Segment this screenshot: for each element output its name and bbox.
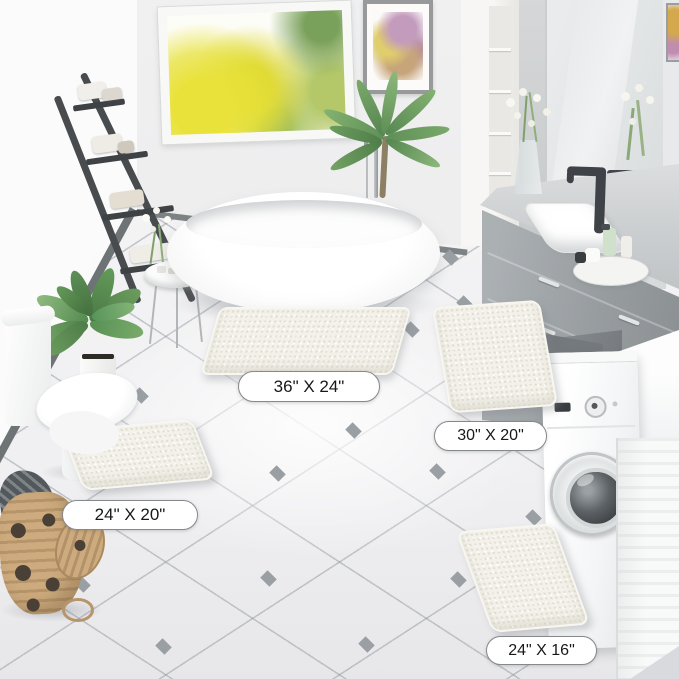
soap-pump — [601, 224, 610, 230]
jar — [157, 266, 166, 273]
basket-dot — [26, 598, 40, 612]
niche-shelf — [489, 90, 511, 93]
bathroom-product-photo: 36" X 24" 30" X 20" 24" X 20" 24" X 16" — [0, 0, 679, 679]
niche-shelf — [489, 132, 511, 135]
basket-handle — [62, 598, 94, 622]
bottle — [621, 236, 632, 258]
mirror-flower — [629, 118, 636, 125]
rolled-towel — [109, 189, 145, 210]
basket-dot — [73, 538, 87, 552]
niche-shelf — [489, 48, 511, 51]
bath-mat-36x24 — [200, 307, 411, 375]
washer-top — [541, 351, 637, 365]
flower — [519, 88, 527, 96]
flower — [164, 216, 171, 223]
basket-dot — [42, 513, 56, 527]
flower — [506, 98, 515, 107]
flower — [533, 94, 541, 102]
mirror-flower — [635, 84, 643, 92]
bathtub-rim — [186, 200, 422, 248]
basket-dot — [10, 523, 26, 539]
rolled-towel — [117, 140, 135, 154]
basket-dot — [45, 577, 60, 592]
washer-display — [554, 403, 570, 412]
mirror-flower — [646, 96, 654, 104]
size-label-24x20: 24" X 20" — [62, 500, 198, 530]
flower — [150, 226, 156, 232]
bath-mat-30x20 — [432, 300, 558, 413]
bath-mat-contour-24x20 — [61, 419, 216, 491]
jar — [585, 248, 600, 262]
mirror-flower-stem — [626, 108, 634, 160]
storage-cabinet — [616, 438, 679, 679]
flower — [528, 120, 535, 127]
flower — [153, 207, 160, 214]
flower — [543, 108, 551, 116]
basket-dot — [15, 565, 32, 582]
plant-soil — [82, 354, 114, 359]
niche-shelf — [489, 172, 511, 175]
mirror-flower-stem — [636, 100, 645, 156]
size-label-36x24: 36" X 24" — [238, 371, 380, 402]
size-label-24x16: 24" X 16" — [486, 636, 597, 665]
flower — [514, 112, 521, 119]
washer-panel-seam — [547, 425, 635, 429]
black-accessory — [575, 252, 586, 263]
flower — [142, 214, 150, 222]
palm-plant — [318, 46, 453, 206]
size-label-30x20: 30" X 20" — [434, 421, 547, 451]
faucet-spout-tip — [567, 170, 574, 183]
washer-button — [612, 401, 617, 406]
soap-dispenser — [603, 228, 616, 256]
mirror-flower — [621, 92, 630, 101]
wall-art-partial — [666, 3, 679, 62]
